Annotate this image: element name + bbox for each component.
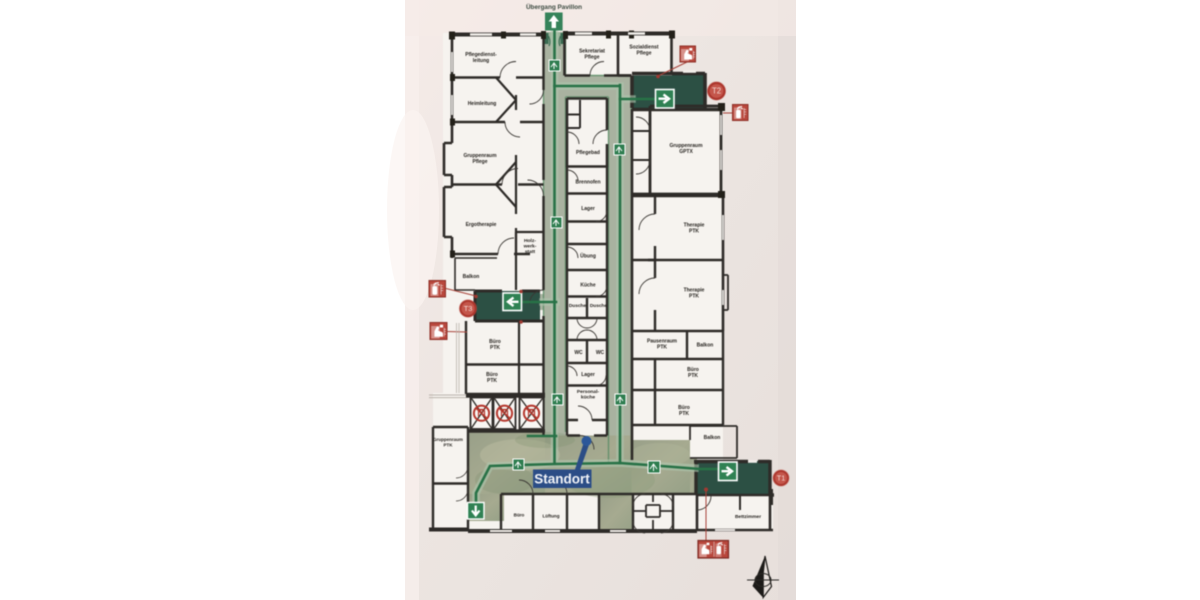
svg-text:Brennofen: Brennofen <box>576 180 601 186</box>
svg-text:T3: T3 <box>464 304 473 313</box>
svg-text:Ergotherapie: Ergotherapie <box>466 222 497 228</box>
svg-text:Dusche: Dusche <box>590 303 608 309</box>
svg-text:Pflegebad: Pflegebad <box>576 150 600 156</box>
svg-text:Standort: Standort <box>534 472 590 487</box>
svg-text:Balkon: Balkon <box>463 274 480 280</box>
svg-text:T1: T1 <box>777 475 785 482</box>
svg-text:WC: WC <box>574 350 583 356</box>
svg-text:BüroPTK: BüroPTK <box>489 339 501 351</box>
svg-text:Heimleitung: Heimleitung <box>468 101 497 107</box>
svg-text:Lager: Lager <box>581 372 595 378</box>
svg-text:Balkon: Balkon <box>704 435 721 441</box>
svg-text:WC: WC <box>596 350 605 356</box>
svg-text:Küche: Küche <box>580 283 596 289</box>
svg-text:Dusche: Dusche <box>569 303 587 309</box>
svg-text:Holz-werk-statt: Holz-werk-statt <box>523 238 537 255</box>
svg-text:Balkon: Balkon <box>697 343 714 349</box>
svg-text:BüroPTK: BüroPTK <box>678 405 690 417</box>
svg-text:Lager: Lager <box>581 206 595 212</box>
svg-text:Übung: Übung <box>580 253 596 260</box>
svg-text:BüroPTK: BüroPTK <box>486 372 498 384</box>
svg-text:Lüftung: Lüftung <box>542 514 559 519</box>
svg-text:Übergang Pavillon: Übergang Pavillon <box>526 2 582 11</box>
svg-text:Bettzimmer: Bettzimmer <box>735 514 761 520</box>
svg-text:Büro: Büro <box>514 513 525 518</box>
svg-text:T2: T2 <box>712 87 721 96</box>
svg-text:BüroPTK: BüroPTK <box>687 367 699 379</box>
